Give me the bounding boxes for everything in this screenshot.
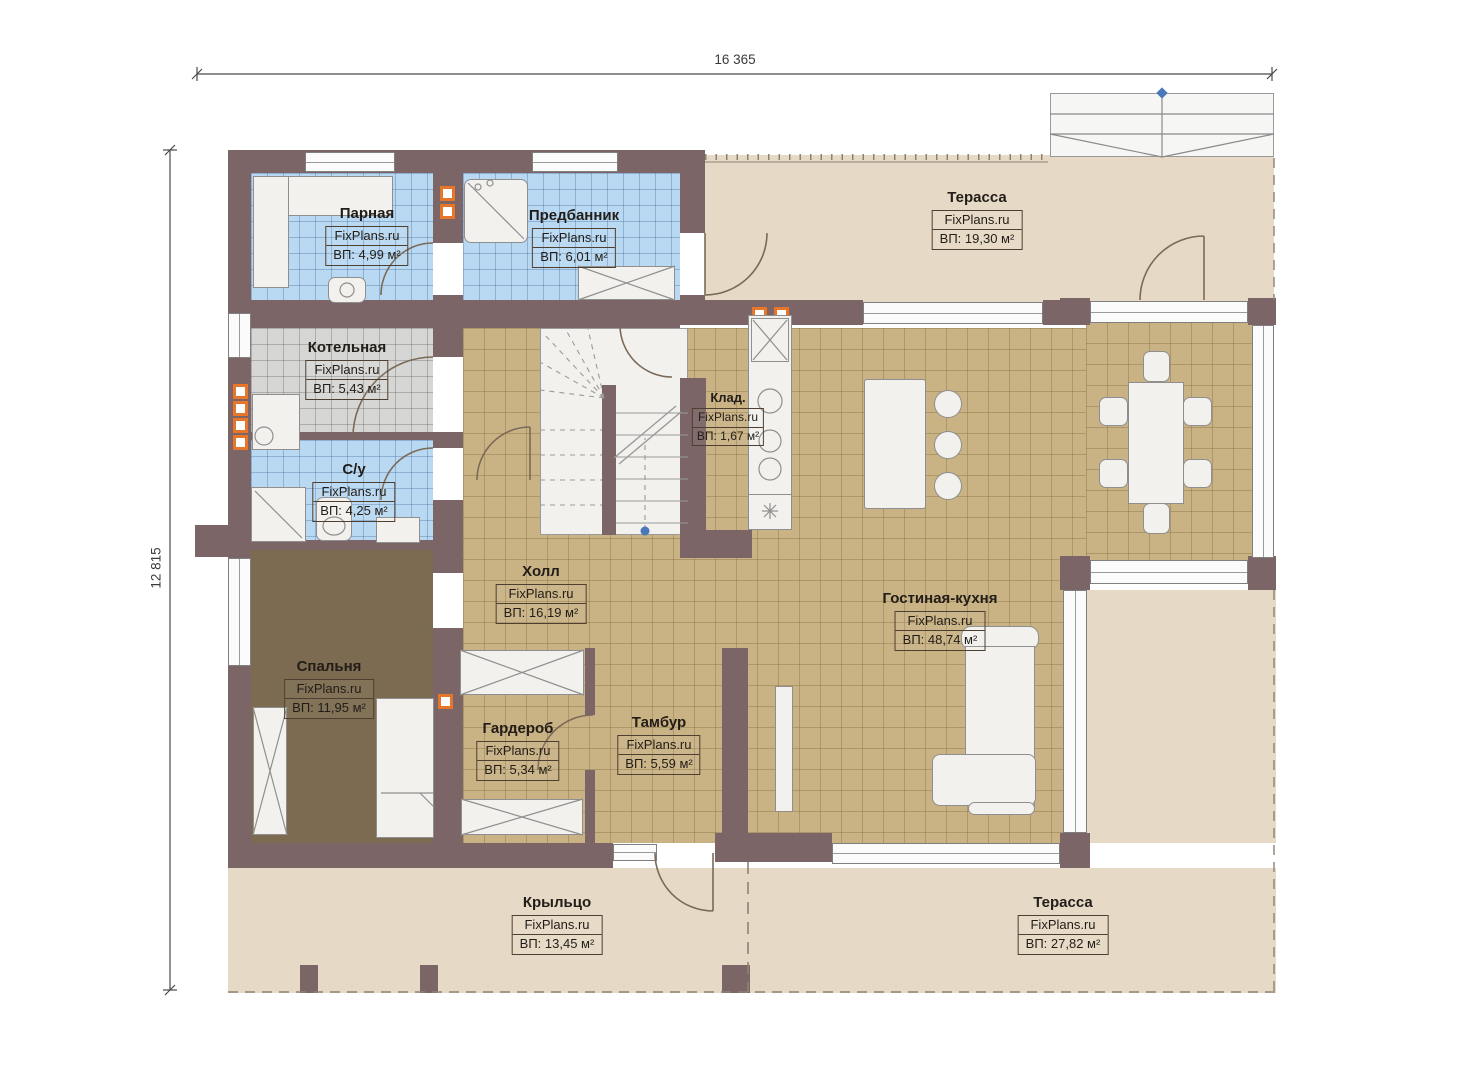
bar-stool-3	[934, 472, 962, 500]
wardrobe-garderob-bottom	[461, 799, 583, 835]
vent-icon-4	[233, 435, 248, 450]
wall-garderob-east-1	[585, 648, 595, 715]
wardrobe-garderob-top	[460, 650, 584, 695]
porch-column-2	[420, 965, 438, 993]
dining-chair-right-1	[1183, 397, 1212, 426]
wall-north	[228, 150, 705, 173]
dining-chair-left-2	[1099, 459, 1128, 488]
dining-table	[1128, 382, 1184, 504]
window-living-east	[1063, 590, 1087, 833]
dining-chair-bottom	[1143, 503, 1170, 534]
window-bay-north	[1090, 301, 1248, 323]
room-label-klad: Клад. FixPlans.ru ВП: 1,67 м²	[692, 391, 764, 446]
vent-icon-6	[440, 204, 455, 219]
kitchen-island	[864, 379, 926, 509]
entry-door-threshold	[613, 844, 657, 861]
wardrobe-spalnya	[253, 707, 287, 835]
dimension-left-label: 12 815	[149, 547, 164, 588]
room-label-garderob: Гардероб FixPlans.ru ВП: 5,34 м²	[476, 721, 559, 781]
wall-west	[228, 150, 251, 868]
fridge	[751, 318, 789, 362]
shower-tray-predbannik	[464, 179, 528, 243]
window-kitchen-north	[863, 302, 1043, 324]
window-bay-south	[1090, 560, 1248, 584]
dimension-top-label: 16 365	[714, 52, 755, 67]
bed	[376, 698, 434, 838]
vent-icon-1	[233, 384, 248, 399]
porch-column-1	[300, 965, 318, 993]
bay-post-sw	[1060, 556, 1090, 590]
wall-tambur-east	[722, 648, 748, 838]
bay-post-nw	[1060, 298, 1090, 325]
room-label-holl: Холл FixPlans.ru ВП: 16,19 м²	[496, 564, 587, 624]
room-label-tambur: Тамбур FixPlans.ru ВП: 5,59 м²	[617, 715, 700, 775]
porch-column-3	[722, 965, 750, 993]
bar-stool-1	[934, 390, 962, 418]
vent-icon-3	[233, 418, 248, 433]
terrace-right-floor	[1087, 590, 1276, 843]
wall-stair-stub	[602, 385, 616, 535]
dining-chair-left-1	[1099, 397, 1128, 426]
wall-garderob-east-2	[585, 770, 595, 843]
wall-entry-east	[715, 833, 832, 862]
porch-and-terrace-bottom-floor	[228, 868, 1276, 993]
room-label-terrace-top: Терасса FixPlans.ru ВП: 19,30 м²	[932, 190, 1023, 250]
window-living-south	[832, 843, 1060, 864]
sofa-seat-corner	[932, 754, 1036, 806]
bench-predbannik	[578, 266, 675, 300]
window-predbannik	[532, 152, 618, 172]
sauna-heater	[328, 277, 366, 303]
vent-icon-2	[233, 401, 248, 416]
dining-chair-top	[1143, 351, 1170, 382]
room-label-kryltso: Крыльцо FixPlans.ru ВП: 13,45 м²	[512, 895, 603, 955]
bay-post-se	[1248, 556, 1276, 590]
room-label-predbannik: Предбанник FixPlans.ru ВП: 6,01 м²	[529, 208, 619, 268]
wall-corner-se	[1060, 833, 1090, 868]
wall-spine-4	[433, 500, 463, 573]
wall-klad-south	[680, 530, 752, 558]
dining-chair-right-2	[1183, 459, 1212, 488]
window-parnaya	[305, 152, 395, 172]
room-label-parnaya: Парная FixPlans.ru ВП: 4,99 м²	[325, 206, 408, 266]
sauna-bench-left	[253, 176, 289, 288]
floor-plan: 16 365 12 815 Парная FixPlans.ru ВП: 4,9…	[0, 0, 1474, 1080]
vent-icon-7	[438, 694, 453, 709]
room-label-terrace-bottom: Терасса FixPlans.ru ВП: 27,82 м²	[1018, 895, 1109, 955]
kitchen-lower-box	[748, 494, 792, 530]
window-spalnya	[228, 558, 251, 666]
room-label-spalnya: Спальня FixPlans.ru ВП: 11,95 м²	[284, 659, 374, 719]
window-kotelnaya	[228, 313, 251, 358]
room-label-su: С/у FixPlans.ru ВП: 4,25 м²	[312, 462, 395, 522]
room-label-kotelnaya: Котельная FixPlans.ru ВП: 5,43 м²	[305, 340, 388, 400]
shower-su	[251, 487, 306, 542]
sofa-pad	[968, 802, 1035, 815]
wall-parnaya-south	[228, 300, 680, 328]
wall-spine-5	[433, 628, 463, 843]
wall-predbannik-east-1	[680, 150, 705, 233]
window-bay-east	[1252, 325, 1274, 558]
bay-post-ne	[1248, 298, 1276, 325]
boiler	[252, 394, 300, 450]
wall-south-left	[228, 843, 613, 868]
bar-stool-2	[934, 431, 962, 459]
exterior-stairs	[1050, 93, 1274, 157]
room-label-gostinaya: Гостиная-кухня FixPlans.ru ВП: 48,74 м²	[883, 591, 998, 651]
vent-icon-5	[440, 186, 455, 201]
tv-cabinet	[775, 686, 793, 812]
wall-west-stub	[195, 525, 230, 557]
